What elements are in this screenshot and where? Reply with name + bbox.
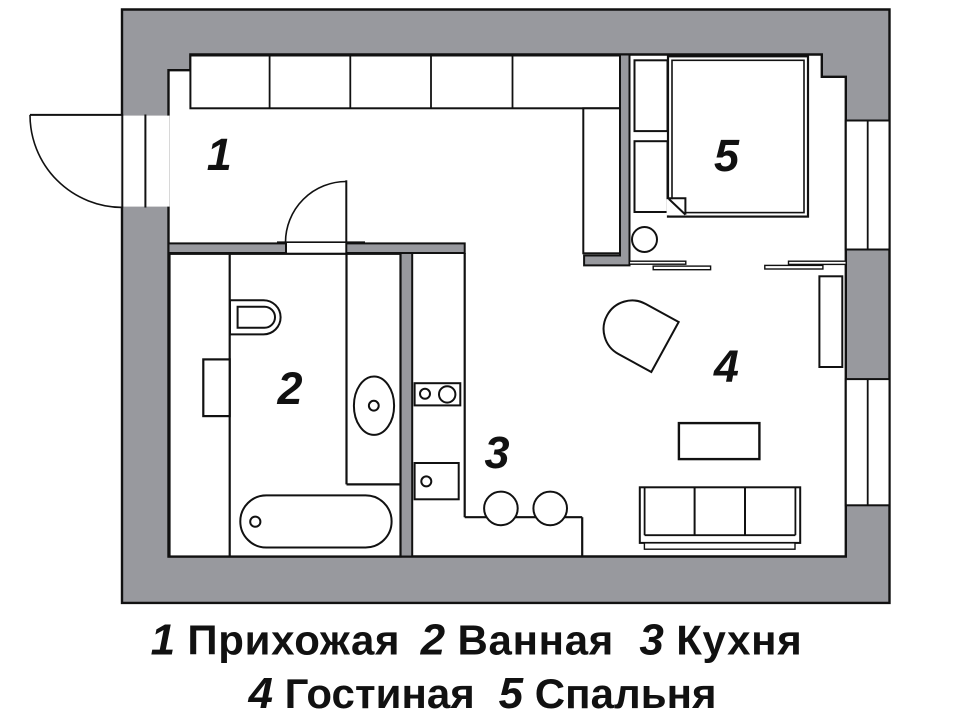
svg-text:3: 3	[484, 427, 509, 478]
svg-text:4: 4	[713, 341, 739, 392]
svg-text:1: 1	[207, 129, 232, 180]
svg-text:4 Гостиная 5 Спальня: 4 Гостиная 5 Спальня	[247, 669, 716, 718]
svg-text:1 Прихожая 2 Ванная 3 Кухня: 1 Прихожая 2 Ванная 3 Кухня	[151, 616, 803, 665]
svg-text:5: 5	[714, 130, 740, 181]
svg-text:2: 2	[276, 363, 302, 414]
